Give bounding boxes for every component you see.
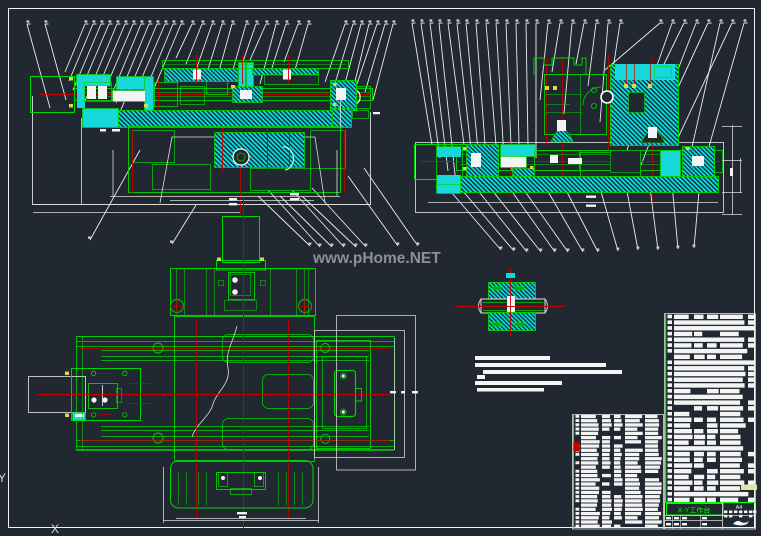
svg-text:X: X — [51, 522, 59, 536]
svg-text:X-Y工作台: X-Y工作台 — [678, 506, 711, 515]
svg-text:A4: A4 — [736, 505, 743, 511]
svg-text:www.pHome.NET: www.pHome.NET — [312, 250, 441, 267]
svg-text:Y: Y — [0, 471, 6, 485]
